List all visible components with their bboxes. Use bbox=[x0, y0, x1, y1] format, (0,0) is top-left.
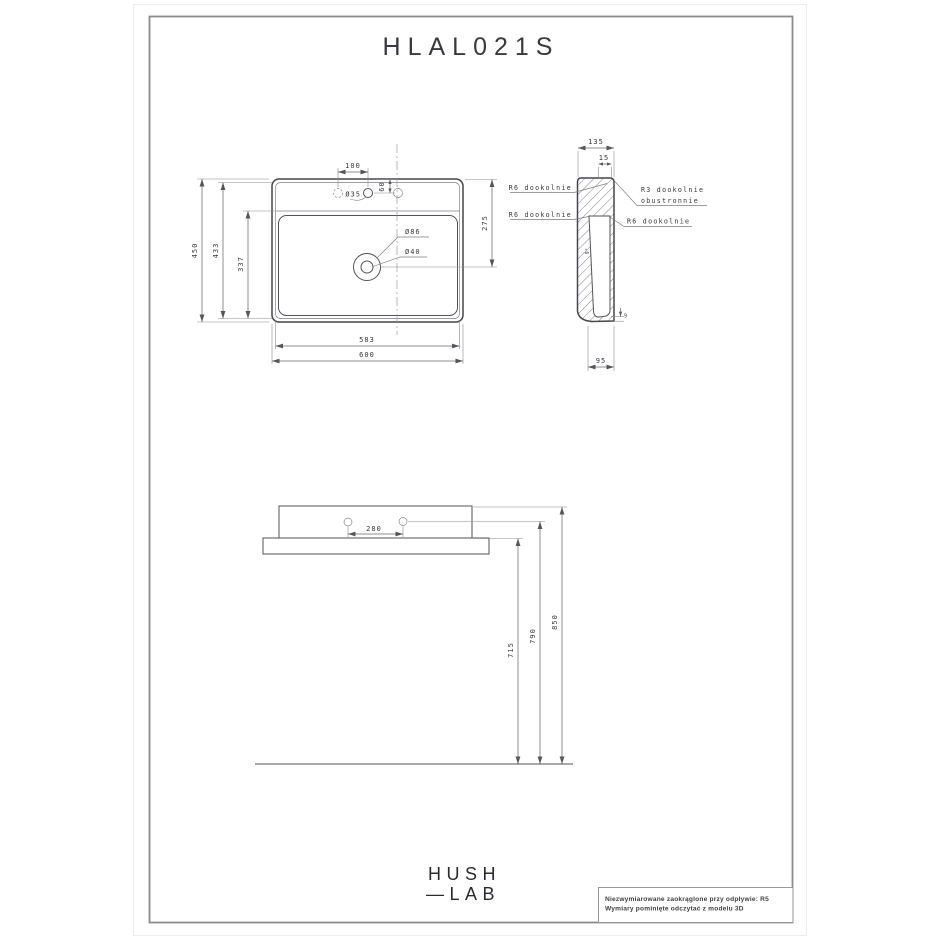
technical-drawing: HLAL021S 100 60 Ø35 bbox=[0, 0, 940, 940]
dim-280-label: 280 bbox=[366, 525, 382, 533]
mounting-hole-right bbox=[399, 518, 407, 526]
dim-583-label: 583 bbox=[359, 336, 375, 344]
dim-mounting-spacing-280: 280 bbox=[348, 525, 403, 537]
dim-715-label: 715 bbox=[507, 642, 515, 658]
dim-790-label: 790 bbox=[529, 628, 537, 644]
dim-337-label: 337 bbox=[237, 256, 245, 272]
sheet-outer-border bbox=[134, 5, 807, 936]
r3-label-line2: obustronnie bbox=[641, 197, 699, 205]
callout-r6-right: R6 dookolnie bbox=[611, 218, 693, 227]
mounting-hole-left bbox=[344, 518, 352, 526]
logo-line2: —LAB bbox=[426, 884, 500, 904]
wall-angle-label: 9° bbox=[585, 248, 591, 255]
brand-logo: HUSH —LAB bbox=[426, 864, 501, 904]
dim-width-600: 600 bbox=[272, 324, 463, 364]
r3-label-line1: R3 dookolnie bbox=[641, 186, 704, 194]
tap-hole-center bbox=[364, 189, 373, 198]
dia-35-label: Ø35 bbox=[345, 191, 361, 199]
front-body bbox=[279, 506, 472, 538]
dia-86-label: Ø86 bbox=[405, 228, 421, 236]
tap-hole-left bbox=[334, 189, 343, 198]
drawing-frame bbox=[150, 17, 793, 923]
dim-drain-depth-275: 275 bbox=[381, 180, 497, 268]
basin-bowl bbox=[279, 216, 458, 316]
callout-r6-mid: R6 dookolnie bbox=[509, 211, 589, 220]
note-line-2: Wymiary pominięte odczytać z modelu 3D bbox=[605, 906, 744, 913]
logo-line1: HUSH bbox=[428, 864, 501, 884]
dim-100-label: 100 bbox=[345, 162, 361, 170]
basin-inner-edge bbox=[276, 183, 460, 319]
dim-hole-offset-60: 60 bbox=[374, 180, 396, 194]
label-drain-diameters: Ø86 Ø40 bbox=[373, 228, 429, 267]
dim-95-label: 95 bbox=[596, 357, 606, 365]
section-hatch bbox=[578, 178, 615, 322]
dia-40-label: Ø40 bbox=[405, 248, 421, 256]
drawing-title: HLAL021S bbox=[383, 33, 560, 61]
dim-height-790: 790 bbox=[529, 522, 540, 765]
drain-outer-circle bbox=[354, 254, 381, 281]
section-view: 135 15 95 9° 9 R6 dookolnie bbox=[509, 138, 707, 371]
dim-850-label: 850 bbox=[551, 614, 559, 630]
dim-60-label: 60 bbox=[378, 181, 386, 191]
basin-outline bbox=[272, 179, 463, 322]
dim-275-label: 275 bbox=[481, 215, 489, 231]
dim-15-label: 15 bbox=[599, 154, 609, 162]
dim-width-583: 583 bbox=[276, 320, 460, 349]
drawing-sheet: HLAL021S 100 60 Ø35 bbox=[0, 0, 940, 940]
dim-depth-433: 433 bbox=[212, 183, 272, 319]
front-rim bbox=[263, 538, 489, 554]
bottom-thickness-label: 9 bbox=[624, 314, 627, 320]
r6-top-label: R6 dookolnie bbox=[509, 184, 572, 192]
dim-433-label: 433 bbox=[212, 243, 220, 259]
drain-inner-circle bbox=[361, 261, 373, 273]
dim-bottom-95: 95 bbox=[588, 326, 614, 371]
dim-hole-spacing-100: 100 bbox=[338, 162, 368, 187]
front-view: 280 715 790 850 bbox=[255, 506, 573, 764]
dim-height-850: 850 bbox=[551, 507, 562, 764]
callout-r3: R3 dookolnie obustronnie bbox=[615, 181, 708, 206]
dim-rim-15: 15 bbox=[599, 154, 612, 178]
note-line-1: Niezwymiarowane zaokrąglone przy odpływi… bbox=[605, 896, 769, 903]
dim-600-label: 600 bbox=[359, 351, 375, 359]
plan-view: 100 60 Ø35 Ø86 Ø40 275 bbox=[191, 144, 497, 364]
dim-depth-450: 450 bbox=[191, 179, 269, 322]
r6-mid-label: R6 dookolnie bbox=[509, 211, 572, 219]
dim-450-label: 450 bbox=[191, 243, 199, 259]
notes-box: Niezwymiarowane zaokrąglone przy odpływi… bbox=[599, 888, 794, 923]
r6-right-label: R6 dookolnie bbox=[627, 218, 690, 226]
dim-135-label: 135 bbox=[588, 138, 604, 146]
dim-height-715: 715 bbox=[507, 539, 518, 765]
dim-bowl-depth-337: 337 bbox=[237, 211, 275, 319]
